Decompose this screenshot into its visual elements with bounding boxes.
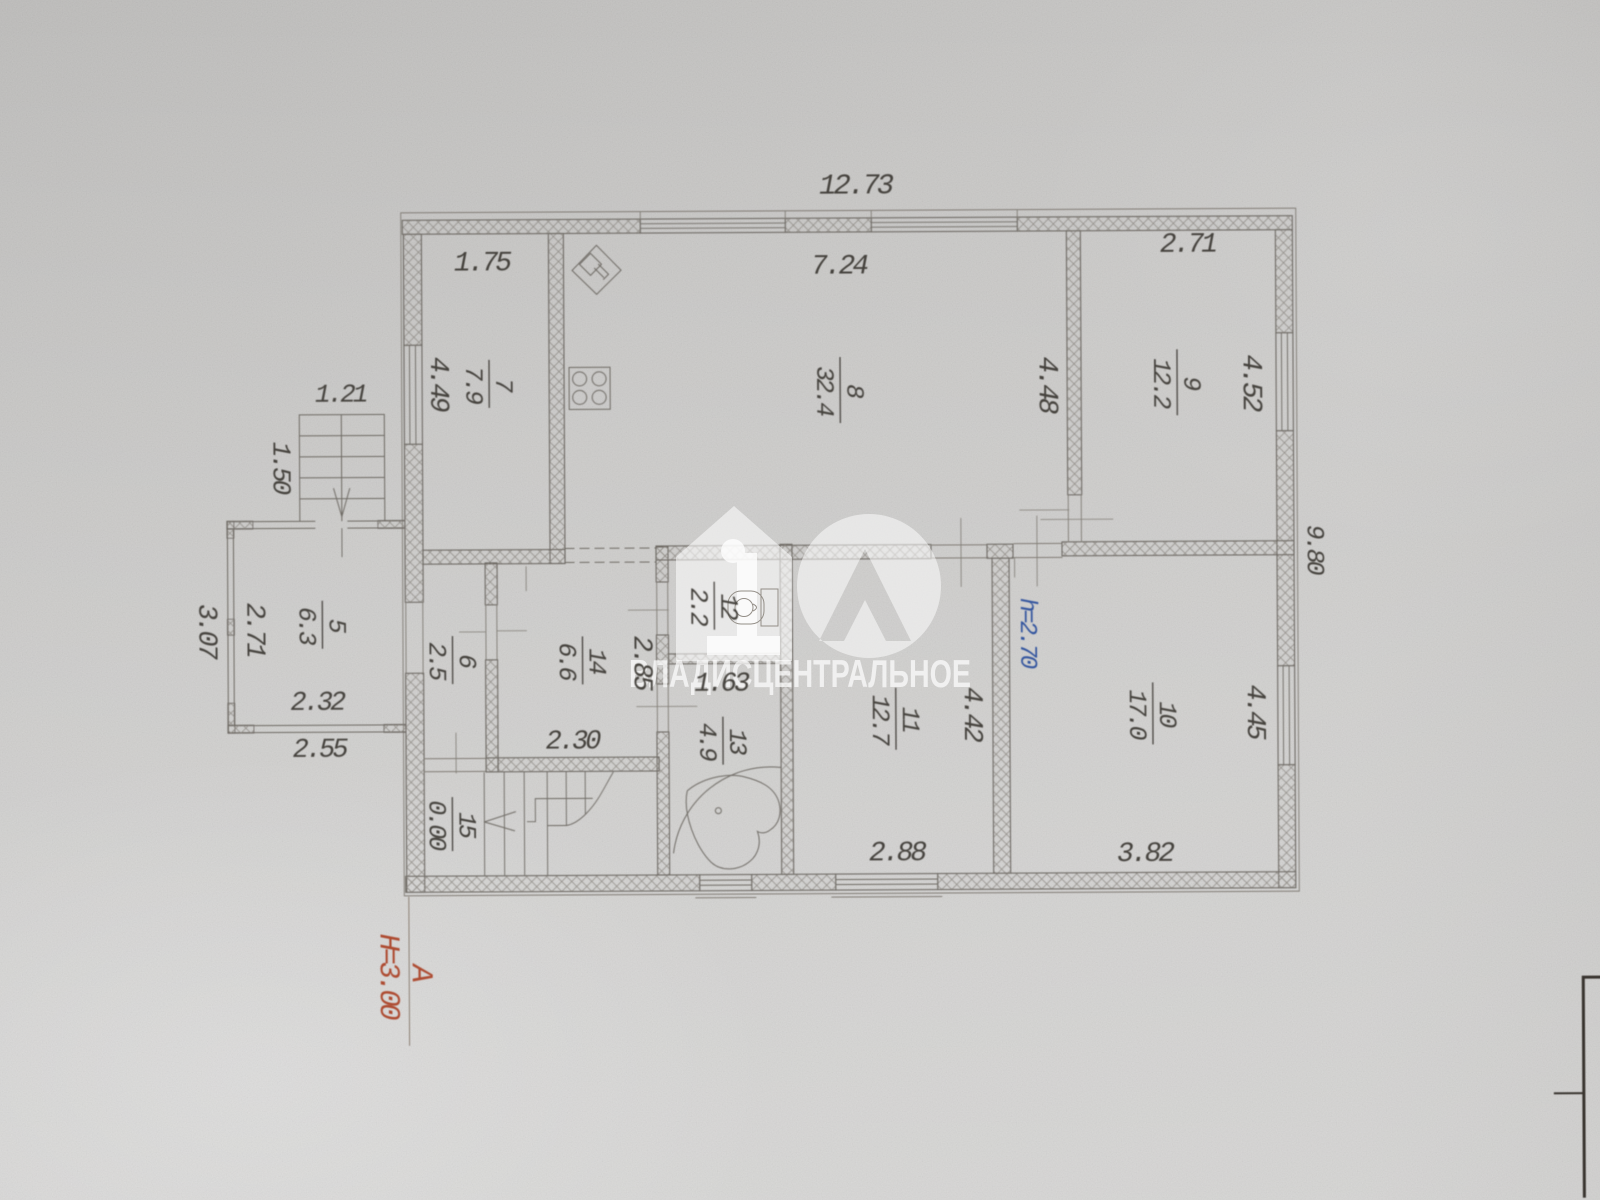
svg-text:1.63: 1.63	[694, 670, 750, 700]
svg-text:ВЛАДИСЦЕНТРАЛЬНОЕ: ВЛАДИСЦЕНТРАЛЬНОЕ	[629, 653, 971, 696]
svg-text:2.30: 2.30	[546, 727, 602, 757]
svg-text:4.48: 4.48	[1030, 356, 1061, 414]
svg-text:2.71: 2.71	[1160, 230, 1217, 261]
svg-text:3.07: 3.07	[190, 604, 220, 661]
svg-text:7.9: 7.9	[458, 366, 487, 404]
svg-text:7.24: 7.24	[811, 251, 869, 282]
svg-text:2.85: 2.85	[625, 636, 655, 692]
svg-text:6.3: 6.3	[291, 607, 320, 646]
svg-text:А: А	[403, 962, 438, 981]
svg-text:2.5: 2.5	[421, 642, 450, 681]
svg-text:12.2: 12.2	[1146, 358, 1175, 409]
svg-text:2.32: 2.32	[290, 689, 346, 719]
svg-text:3.82: 3.82	[1117, 839, 1175, 870]
svg-text:4.42: 4.42	[956, 687, 986, 743]
svg-text:1.21: 1.21	[315, 380, 367, 410]
svg-text:17.0: 17.0	[1122, 689, 1151, 740]
svg-text:6.6: 6.6	[551, 642, 580, 681]
svg-text:1.50: 1.50	[265, 442, 295, 495]
svg-text:4.9: 4.9	[692, 723, 721, 761]
svg-text:2.2: 2.2	[683, 588, 712, 627]
svg-text:10: 10	[1152, 701, 1181, 728]
svg-text:2.55: 2.55	[293, 736, 349, 766]
svg-text:2.88: 2.88	[869, 838, 927, 869]
svg-text:0.00: 0.00	[421, 800, 450, 851]
svg-text:Н=3.00: Н=3.00	[372, 934, 405, 1021]
svg-text:1.75: 1.75	[454, 248, 513, 279]
svg-text:12: 12	[713, 594, 742, 621]
svg-text:9.80: 9.80	[1299, 524, 1328, 575]
svg-text:15: 15	[451, 812, 480, 839]
svg-text:h=2.70: h=2.70	[1013, 598, 1040, 669]
svg-text:32.4: 32.4	[809, 366, 838, 416]
svg-text:4.52: 4.52	[1234, 354, 1265, 412]
svg-text:14: 14	[582, 648, 611, 674]
svg-text:13: 13	[722, 729, 751, 756]
svg-text:12.73: 12.73	[819, 169, 894, 202]
svg-text:2.71: 2.71	[238, 603, 268, 657]
svg-text:4.49: 4.49	[422, 357, 452, 413]
svg-text:9: 9	[1176, 376, 1205, 390]
svg-text:12.7: 12.7	[865, 695, 894, 746]
svg-text:4.45: 4.45	[1239, 684, 1269, 740]
svg-text:11: 11	[895, 707, 924, 732]
